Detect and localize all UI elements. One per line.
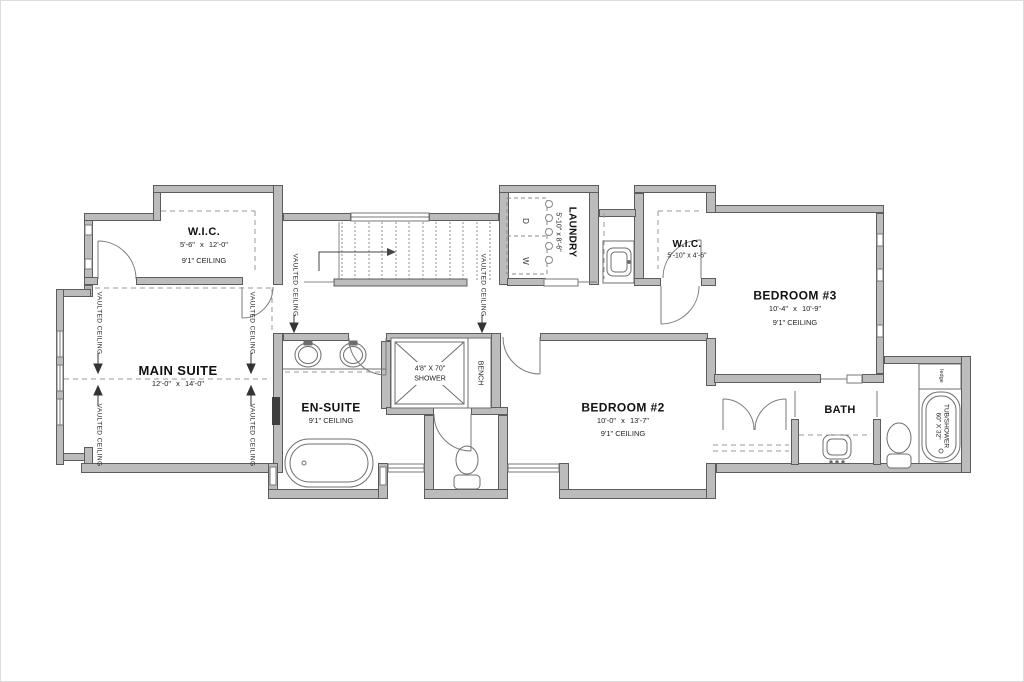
room-dims-bedroom2: 10'-0" x 13'-7" bbox=[597, 417, 649, 425]
wall bbox=[283, 333, 349, 341]
wall bbox=[386, 407, 434, 415]
wall bbox=[471, 407, 508, 415]
wall bbox=[589, 185, 599, 285]
wall bbox=[507, 278, 546, 286]
bedroom3-door bbox=[661, 286, 699, 324]
room-ceiling-wic-main: 9'1" CEILING bbox=[182, 257, 227, 265]
ensuite-tub bbox=[285, 439, 373, 487]
tub-shower-dims: 60" X 32" bbox=[933, 404, 941, 448]
room-dims-wic-main: 5'-6" x 12'-0" bbox=[180, 241, 228, 249]
wall bbox=[706, 205, 884, 213]
room-label-laundry: LAUNDRY bbox=[566, 207, 577, 258]
wall bbox=[153, 185, 283, 193]
wall bbox=[84, 213, 161, 221]
wic-door bbox=[98, 241, 136, 279]
room-label-ensuite: EN-SUITE bbox=[301, 402, 360, 415]
windows bbox=[57, 213, 883, 485]
staircase bbox=[304, 222, 490, 286]
vaulted-arrows bbox=[94, 315, 486, 406]
wall bbox=[873, 419, 881, 465]
wall bbox=[714, 374, 821, 383]
shower-label: SHOWER bbox=[412, 375, 448, 382]
bath-sink bbox=[823, 435, 851, 463]
wall bbox=[378, 463, 388, 499]
room-ceiling-ensuite: 9'1" CEILING bbox=[309, 417, 354, 425]
wall bbox=[499, 185, 599, 193]
stair-arrow-head bbox=[387, 248, 396, 256]
room-label-bedroom3: BEDROOM #3 bbox=[753, 290, 836, 303]
wall bbox=[381, 341, 391, 409]
room-dims-main-suite: 12'-0" x 14'-0" bbox=[152, 380, 204, 388]
wall bbox=[424, 489, 508, 499]
wall bbox=[56, 289, 64, 465]
wall-niche bbox=[272, 397, 280, 425]
wall bbox=[559, 489, 716, 499]
tub-shower-name: TUB/SHOWER bbox=[941, 404, 949, 448]
wall bbox=[84, 213, 93, 285]
wall bbox=[876, 213, 884, 374]
room-label-bath: BATH bbox=[824, 405, 855, 417]
toilet-icon bbox=[454, 446, 480, 489]
vaulted-ceiling-label: VAULTED CEILING bbox=[248, 404, 255, 467]
sink-icon bbox=[340, 343, 366, 367]
shower-dims: 4'8" X 70" bbox=[413, 365, 447, 372]
washer-label: W bbox=[521, 257, 529, 265]
wall bbox=[599, 209, 636, 217]
vaulted-ceiling-label: VAULTED CEILING bbox=[479, 254, 486, 317]
door-swings bbox=[98, 240, 786, 451]
wall bbox=[136, 277, 243, 285]
wall bbox=[283, 213, 351, 221]
room-label-main-suite: MAIN SUITE bbox=[138, 364, 217, 378]
room-dims-laundry: 5'-10" x 8'-6" bbox=[554, 212, 561, 251]
dryer-label: D bbox=[521, 218, 529, 224]
closet-french-doors bbox=[723, 399, 786, 430]
wall bbox=[63, 289, 91, 297]
room-label-wic-main: W.I.C. bbox=[188, 227, 220, 239]
wall bbox=[634, 278, 661, 286]
wall bbox=[491, 333, 501, 415]
wall bbox=[386, 333, 501, 341]
wall bbox=[424, 415, 434, 499]
wall bbox=[634, 185, 716, 193]
hall-sink bbox=[603, 241, 634, 283]
ledge-label: ledge bbox=[937, 369, 943, 382]
sink-icon bbox=[295, 343, 321, 367]
wall bbox=[429, 213, 499, 221]
room-label-wic2: W.I.C. bbox=[672, 240, 701, 251]
wall bbox=[706, 463, 716, 499]
wall bbox=[701, 278, 716, 286]
vaulted-ceiling-label: VAULTED CEILING bbox=[291, 254, 298, 317]
room-dims-bedroom3: 10'-4" x 10'-9" bbox=[769, 305, 821, 313]
wall bbox=[862, 374, 884, 383]
wall bbox=[273, 185, 283, 285]
bedroom2-door bbox=[503, 337, 540, 374]
room-ceiling-bedroom3: 9'1" CEILING bbox=[773, 319, 818, 327]
wall bbox=[499, 185, 509, 285]
wall bbox=[268, 489, 386, 499]
wall bbox=[634, 193, 644, 283]
floor-plan: W.I.C. 5'-6" x 12'-0" 9'1" CEILING MAIN … bbox=[0, 0, 1024, 682]
wc-door bbox=[434, 414, 471, 451]
wall bbox=[540, 333, 708, 341]
bench-label: BENCH bbox=[476, 361, 483, 386]
wall bbox=[498, 415, 508, 499]
wall bbox=[716, 463, 969, 473]
room-dims-wic2: 5'-10" x 4'-6" bbox=[667, 252, 706, 259]
wall bbox=[84, 277, 98, 285]
stair-direction-arrow bbox=[319, 252, 387, 271]
vaulted-ceiling-label: VAULTED CEILING bbox=[95, 404, 102, 467]
wall bbox=[884, 356, 971, 364]
vaulted-ceiling-label: VAULTED CEILING bbox=[95, 292, 102, 355]
tub-shower-label: TUB/SHOWER 60" X 32" bbox=[933, 404, 950, 448]
toilet-icon bbox=[887, 423, 911, 468]
wall bbox=[961, 356, 971, 473]
wall bbox=[791, 419, 799, 465]
vaulted-ceiling-label: VAULTED CEILING bbox=[248, 292, 255, 355]
room-ceiling-bedroom2: 9'1" CEILING bbox=[601, 430, 646, 438]
room-label-bedroom2: BEDROOM #2 bbox=[581, 402, 664, 415]
ensuite-vanity bbox=[283, 341, 386, 369]
